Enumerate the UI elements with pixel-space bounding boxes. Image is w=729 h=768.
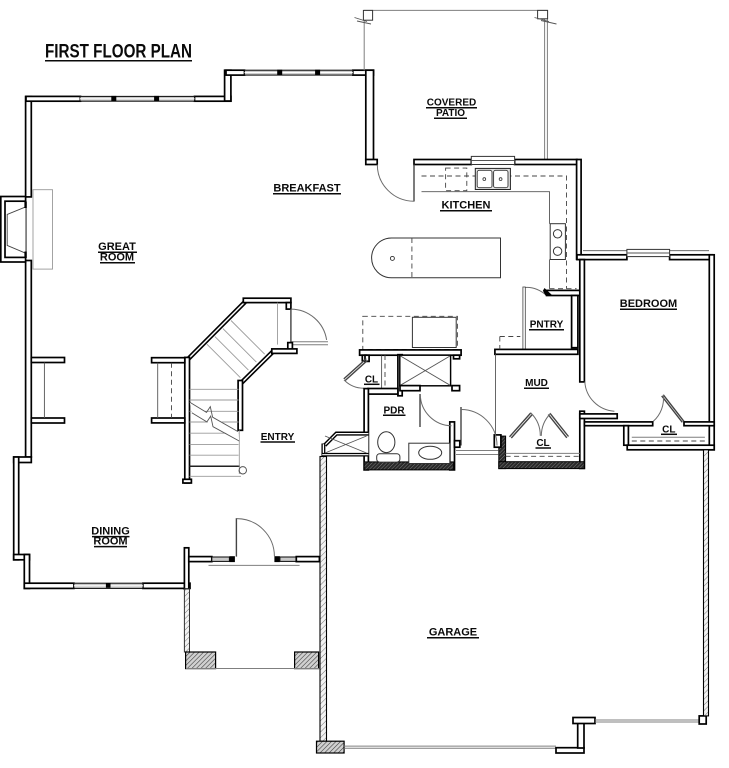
svg-text:COVERED: COVERED xyxy=(427,98,476,109)
svg-text:ROOM: ROOM xyxy=(100,252,134,264)
svg-text:BREAKFAST: BREAKFAST xyxy=(273,183,341,195)
svg-text:MUD: MUD xyxy=(525,378,548,389)
svg-text:BEDROOM: BEDROOM xyxy=(620,298,677,310)
svg-text:ROOM: ROOM xyxy=(93,536,127,548)
svg-text:FIRST FLOOR PLAN: FIRST FLOOR PLAN xyxy=(45,42,192,63)
svg-text:KITCHEN: KITCHEN xyxy=(442,200,491,212)
svg-text:PNTRY: PNTRY xyxy=(530,320,564,331)
svg-text:PATIO: PATIO xyxy=(436,108,465,119)
svg-text:GARAGE: GARAGE xyxy=(429,627,477,639)
